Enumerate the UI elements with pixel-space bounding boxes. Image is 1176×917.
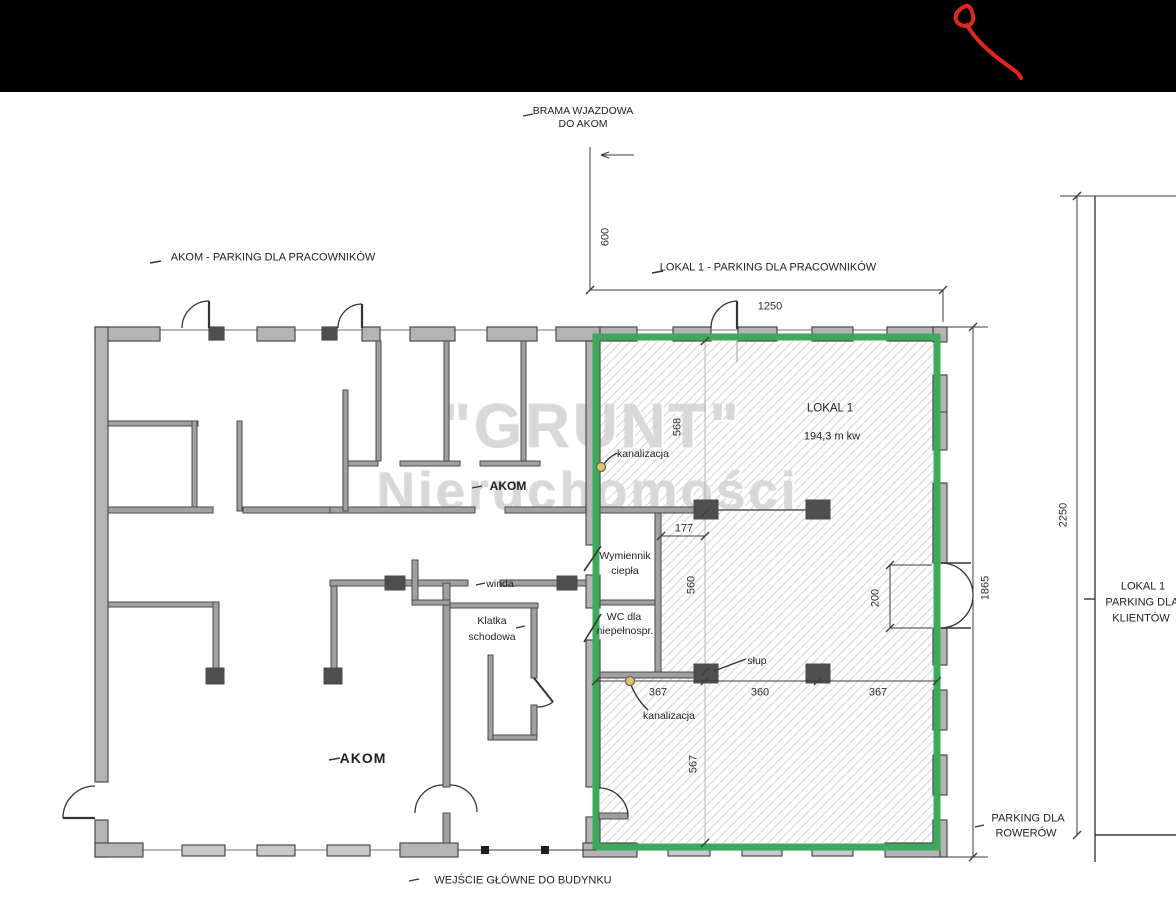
- wc-label-line1: WC dla: [607, 612, 641, 623]
- dim-1250: 1250: [758, 302, 782, 313]
- lokal1-parking-label: LOKAL 1 - PARKING DLA PRACOWNIKÓW: [660, 263, 876, 274]
- dim-367-right: 367: [869, 688, 887, 699]
- gate-label-line1: BRAMA WJAZDOWA: [533, 106, 634, 117]
- column-label: słup: [747, 656, 766, 667]
- dim-600: 600: [601, 228, 612, 246]
- heat-exchanger-label-line2: ciepła: [611, 566, 638, 577]
- staircase-label-line1: Klatka: [477, 616, 506, 627]
- sewer-bottom-label: kanalizacja: [643, 711, 695, 722]
- plan-drawing: [0, 0, 1176, 917]
- bike-parking-label-line2: ROWERÓW: [995, 829, 1056, 840]
- staircase-label-line2: schodowa: [468, 632, 515, 643]
- akom-interior-walls: [108, 341, 586, 843]
- client-parking-label-line3: KLIENTÓW: [1112, 614, 1169, 625]
- client-parking-label-line1: LOKAL 1: [1121, 582, 1165, 593]
- lokal1-interior-walls: [599, 341, 830, 843]
- dim-2250: 2250: [1059, 503, 1070, 527]
- heat-exchanger-label-line1: Wymiennik: [599, 551, 650, 562]
- dim-177: 177: [675, 524, 693, 535]
- dim-568: 568: [673, 418, 684, 436]
- elevator-label: winda: [486, 579, 513, 590]
- sewer-top-label: kanalizacja: [617, 449, 669, 460]
- gate-label-line2: DO AKOM: [558, 119, 607, 130]
- wc-label-line2: niepełnospr.: [597, 626, 654, 637]
- akom-door-swings: [63, 301, 553, 818]
- dim-367-left: 367: [649, 688, 667, 699]
- unit-area-label: 194,3 m kw: [804, 432, 860, 443]
- floor-plan-page: "GRUNT" Nieruchomości: [0, 0, 1176, 917]
- dim-200: 200: [871, 589, 882, 607]
- dim-560: 560: [687, 576, 698, 594]
- lokal1-walls: [583, 327, 947, 857]
- akom-parking-label: AKOM - PARKING DLA PRACOWNIKÓW: [171, 253, 376, 264]
- lokal1-green-outline: [596, 337, 937, 847]
- dim-360: 360: [751, 688, 769, 699]
- akom-hall-label: AKOM: [340, 751, 387, 765]
- bike-parking-label-line1: PARKING DLA: [991, 814, 1064, 825]
- label-leader-marks: [150, 114, 1095, 881]
- akom-corridor-label: AKOM: [490, 480, 527, 492]
- client-parking-label-line2: PARKING DLA: [1105, 598, 1176, 609]
- dim-1865: 1865: [981, 576, 992, 600]
- dim-567: 567: [689, 755, 700, 773]
- main-entrance-label: WEJŚCIE GŁÓWNE DO BUDYNKU: [434, 876, 611, 887]
- unit-name-label: LOKAL 1: [807, 403, 853, 415]
